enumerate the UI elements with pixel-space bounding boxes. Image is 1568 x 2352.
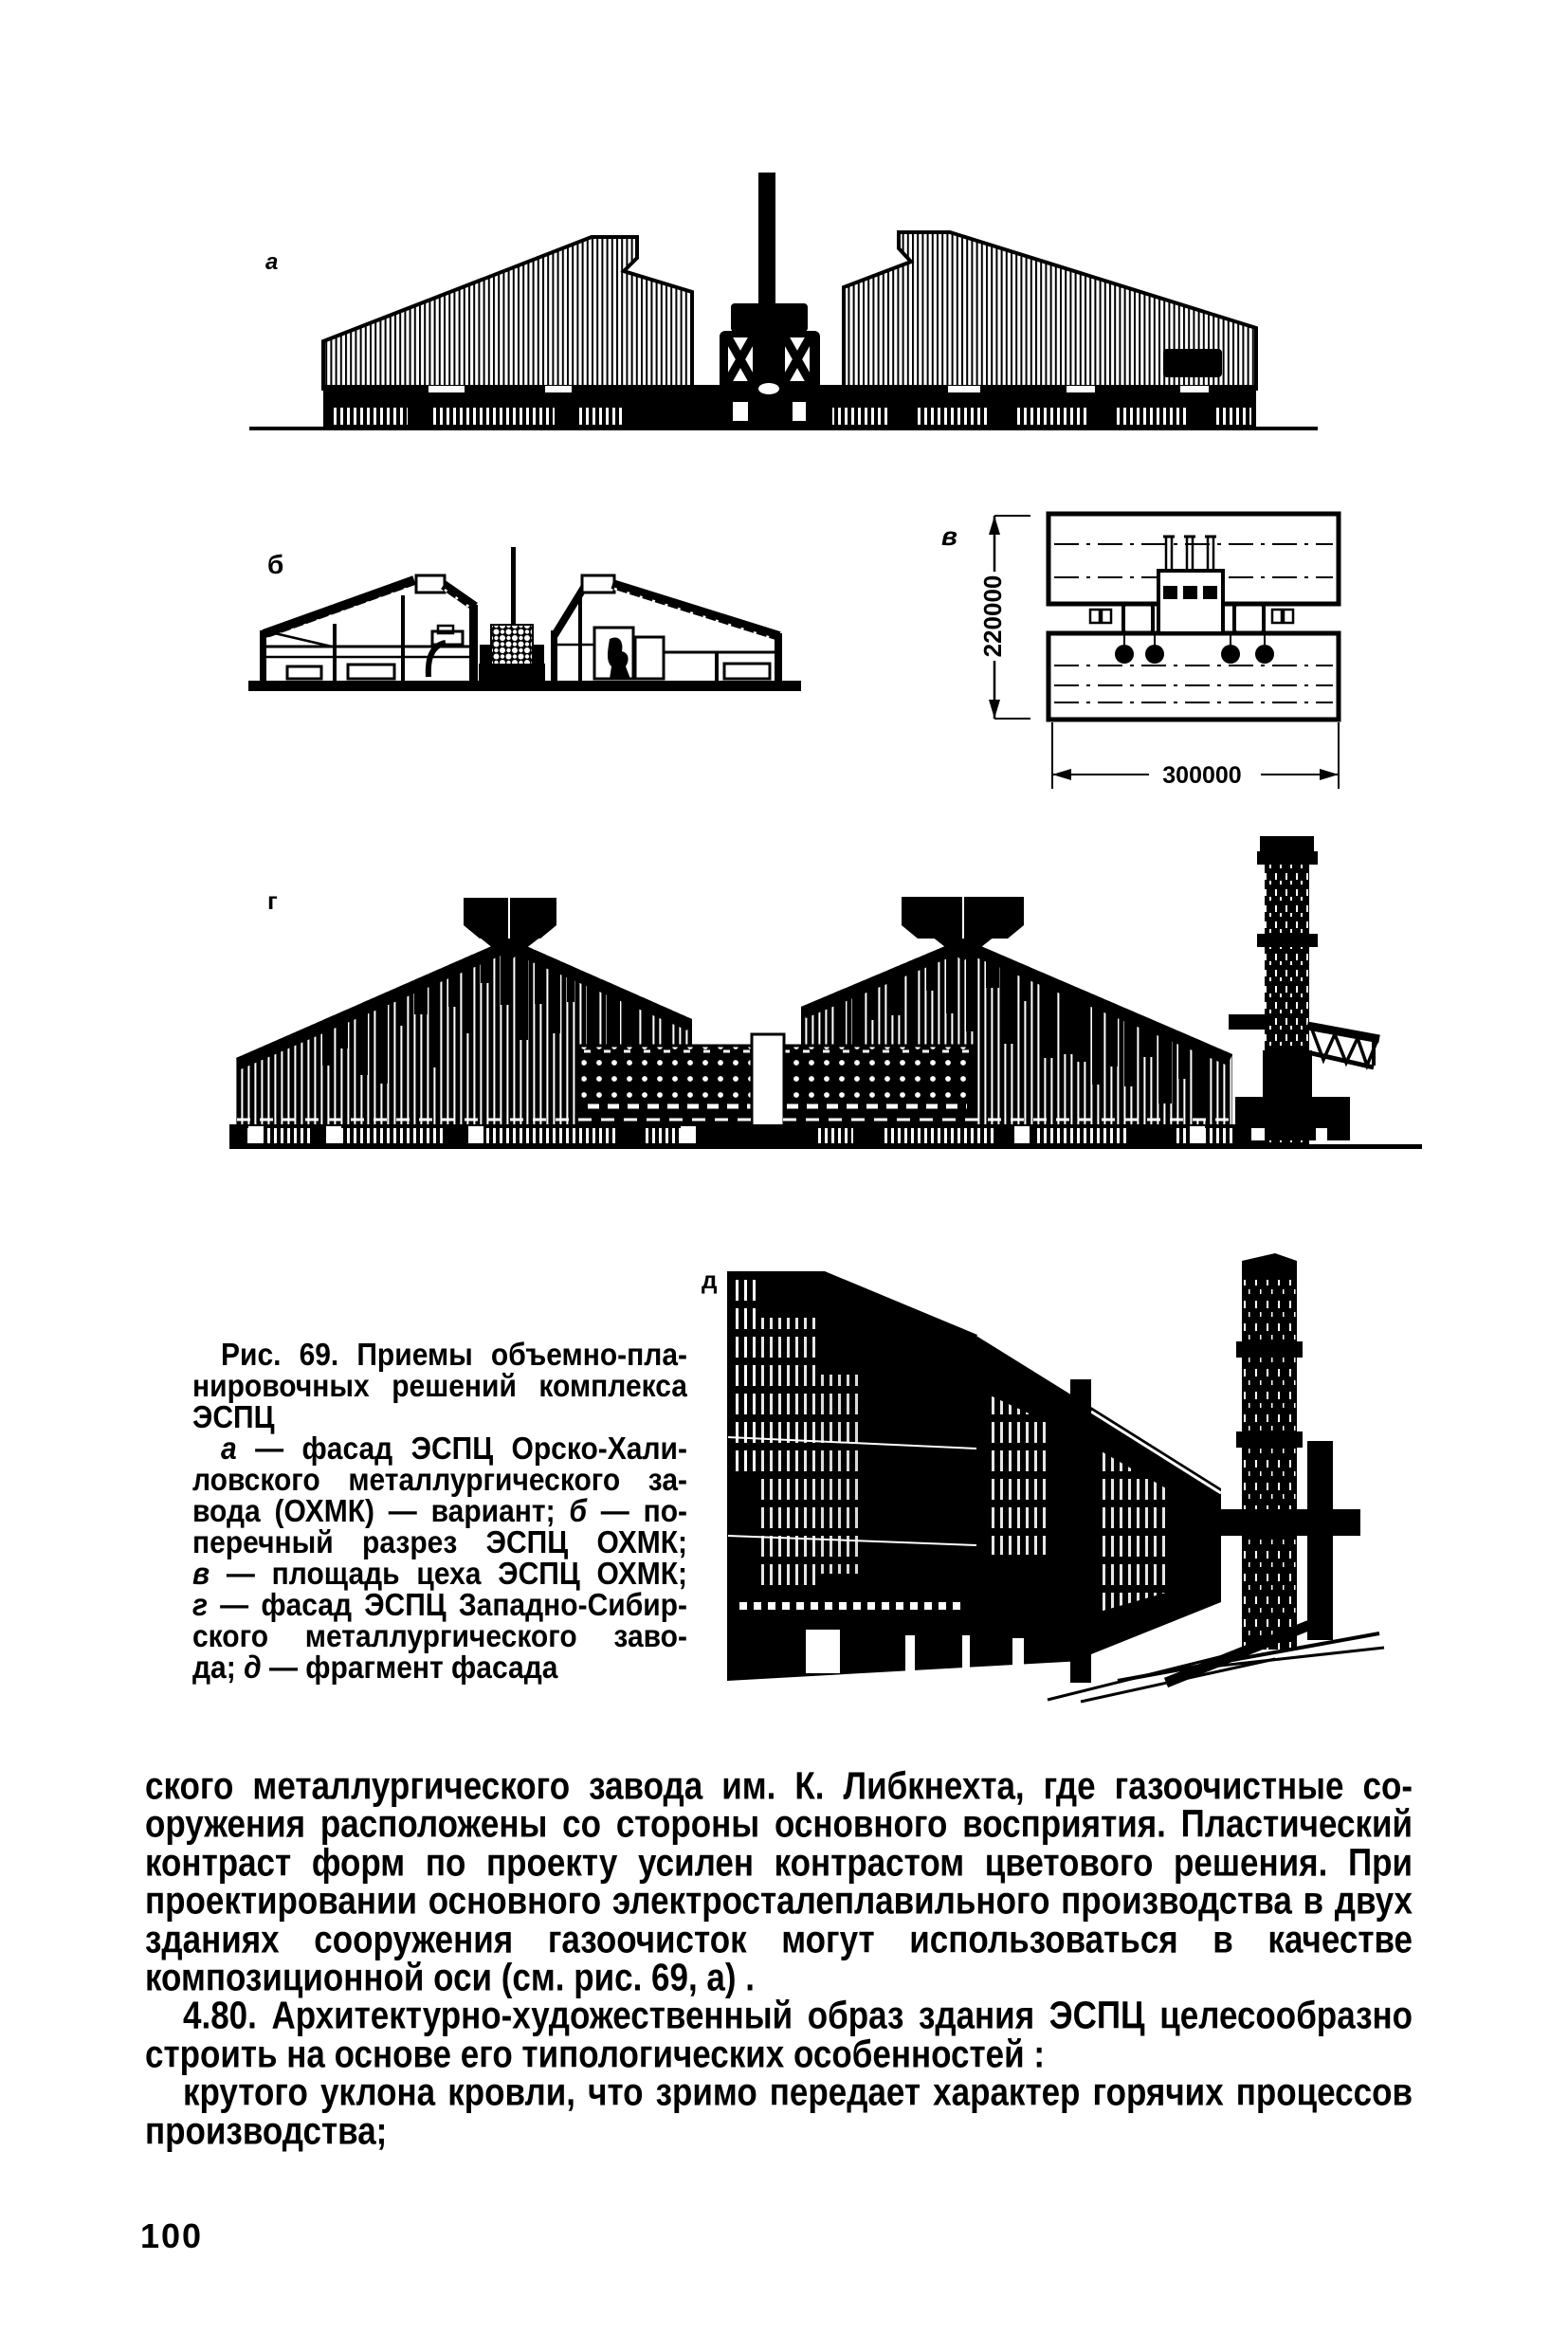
- svg-text:д: д: [702, 1266, 718, 1294]
- svg-text:300000: 300000: [1162, 762, 1241, 789]
- svg-text:в: в: [941, 521, 957, 551]
- svg-text:a: a: [265, 249, 278, 275]
- svg-text:г: г: [267, 886, 278, 915]
- svg-text:б: б: [267, 550, 283, 579]
- svg-text:220000: 220000: [978, 575, 1007, 658]
